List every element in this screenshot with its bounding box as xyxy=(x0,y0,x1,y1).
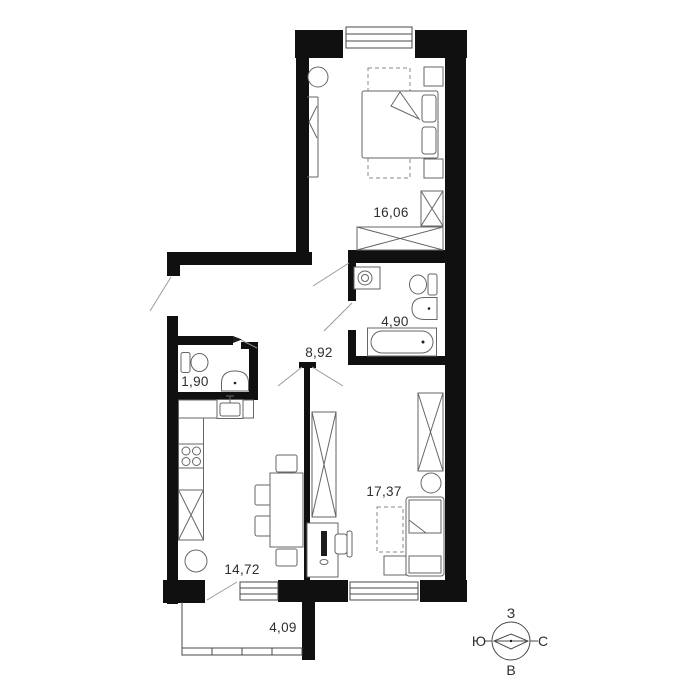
kitchen-balcony-door-icon xyxy=(207,582,278,600)
counter-left xyxy=(179,418,204,540)
living-opening-leaf xyxy=(312,367,343,386)
carpet-dashed xyxy=(377,507,403,552)
desk-chair-icon xyxy=(335,531,352,557)
wc-door-arrow xyxy=(233,336,242,343)
bedroom-furniture xyxy=(307,67,443,250)
chair-icon xyxy=(308,67,328,87)
stove-icon xyxy=(179,444,204,468)
bedroom-door-leaf xyxy=(313,263,349,286)
bathroom-fixtures xyxy=(354,267,437,356)
nightstand-icon xyxy=(424,159,443,178)
wall-bottom-mid xyxy=(278,580,348,602)
cabinet-icon xyxy=(179,490,204,540)
bathtub-icon xyxy=(368,328,437,356)
sink-icon xyxy=(412,298,437,320)
bathroom-door-leaf xyxy=(324,303,352,331)
stool-icon xyxy=(185,550,207,572)
single-bed-icon xyxy=(406,497,444,576)
wall-bath-top xyxy=(348,250,445,263)
wardrobe-icon xyxy=(312,412,336,517)
bedroom-window-icon xyxy=(346,27,412,48)
wall-left-lower xyxy=(167,316,178,604)
wall-wc-right xyxy=(249,345,258,400)
room-label-living-room: 17,37 xyxy=(366,484,401,499)
sink-icon xyxy=(222,371,249,391)
wardrobe-icon xyxy=(421,191,443,226)
room-label-bedroom: 16,06 xyxy=(373,205,408,220)
room-label-hallway: 8,92 xyxy=(305,345,332,360)
kitchen-furniture xyxy=(179,396,304,572)
room-label-bathroom: 4,90 xyxy=(381,314,408,329)
toilet-icon xyxy=(410,274,438,295)
wall-bottom-right xyxy=(420,580,467,602)
washing-machine-icon xyxy=(354,267,380,289)
compass: З Ю С В xyxy=(472,605,548,678)
room-label-balcony: 4,09 xyxy=(269,620,296,635)
kitchen-opening-leaf xyxy=(278,367,302,386)
kitchen-sink-icon xyxy=(217,396,243,419)
wall-bottom-left-pier xyxy=(163,580,205,603)
wardrobe-icon xyxy=(418,393,443,471)
wall-right xyxy=(445,30,466,602)
entrance-door-leaf xyxy=(150,277,171,311)
toilet-icon xyxy=(181,353,208,373)
dining-table-icon xyxy=(255,455,303,566)
living-room-window-icon xyxy=(350,582,418,600)
room-label-wc: 1,90 xyxy=(181,374,208,389)
wall-wc-top xyxy=(178,336,233,345)
desk-icon xyxy=(307,523,338,577)
wall-entrance-stub xyxy=(167,265,180,276)
wall-bath-bottom xyxy=(348,356,445,365)
wall-hall-top xyxy=(167,252,312,265)
compass-label-top: З xyxy=(507,605,515,621)
wall-balcony-right xyxy=(302,602,315,660)
room-label-kitchen: 14,72 xyxy=(224,562,259,577)
double-bed-icon xyxy=(362,91,438,158)
floor-plan-svg: 16,06 4,90 8,92 1,90 17,37 14,72 4,09 З … xyxy=(0,0,700,700)
rug-icon xyxy=(384,556,406,575)
compass-label-right: С xyxy=(538,633,548,649)
compass-label-bottom: В xyxy=(506,662,515,678)
wall-wc-bottom xyxy=(178,392,258,400)
wall-bedroom-left xyxy=(296,30,309,265)
floor-plan-page: 16,06 4,90 8,92 1,90 17,37 14,72 4,09 З … xyxy=(0,0,700,700)
wardrobe-icon xyxy=(357,227,443,250)
chair-icon xyxy=(421,473,441,493)
compass-label-left: Ю xyxy=(472,633,486,649)
nightstand-icon xyxy=(424,67,443,86)
